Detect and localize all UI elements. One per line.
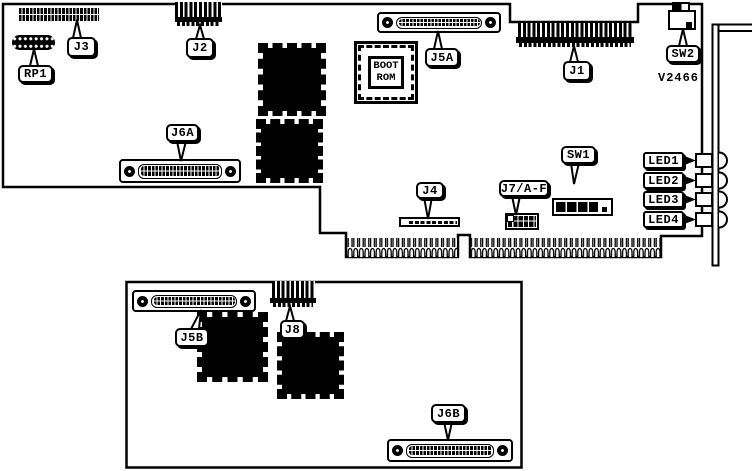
j2-header-pins: [177, 22, 220, 26]
edge-connector-fingers-left: [347, 238, 457, 257]
j4-pins: [409, 221, 457, 224]
j5a-pin-slot: [396, 17, 482, 29]
j4-pin-header: [399, 217, 460, 227]
callout-j6b-text: J6B: [437, 407, 460, 421]
j2-pin-header: [175, 2, 222, 17]
callout-j2-text: J2: [192, 41, 207, 55]
callout-tail-j8: [286, 306, 294, 321]
boot-rom-label: BOOT ROM: [368, 56, 403, 90]
screw-icon: [124, 166, 135, 177]
callout-j5a-text: J5A: [430, 51, 453, 65]
callout-j5a: J5A: [425, 48, 459, 67]
callout-rp1-text: RP1: [24, 67, 47, 81]
j6b-connector: [387, 439, 513, 462]
callout-j7af-text: J7/A-F: [501, 182, 547, 196]
callout-j6a: J6A: [166, 124, 199, 142]
boot-rom-socket: BOOT ROM: [358, 45, 414, 100]
callout-sw1: SW1: [561, 146, 596, 164]
callout-led2: LED2: [643, 172, 684, 189]
callout-sw2-text: SW2: [671, 47, 694, 61]
callout-j5b-text: J5B: [180, 331, 203, 345]
rp1-resistor-pack: [12, 35, 55, 50]
j6a-pin-slot: [138, 164, 222, 179]
sw2-pin-dot: [686, 22, 692, 28]
callout-j8: J8: [280, 320, 305, 339]
sw1-pin-dot: [602, 207, 607, 212]
qfp-chip-d: [277, 332, 344, 399]
callout-sw1-text: SW1: [567, 148, 590, 162]
mounting-bracket: [713, 25, 719, 266]
callout-led1-text: LED1: [648, 154, 679, 168]
edge-connector-fingers-right: [471, 238, 660, 257]
callout-j8-text: J8: [285, 323, 300, 337]
j6a-connector: [119, 159, 241, 183]
callout-led4: LED4: [643, 211, 684, 228]
callout-tail-j4: [424, 197, 432, 219]
callout-led3-text: LED3: [648, 193, 679, 207]
j1-header-pins: [519, 43, 631, 47]
led4-lens: [719, 212, 727, 228]
callout-tail-j6a: [177, 141, 186, 161]
callout-j4: J4: [416, 182, 444, 199]
sw1-poles: [556, 202, 598, 212]
callout-j4-text: J4: [422, 184, 437, 198]
screw-icon: [137, 296, 148, 307]
led2-lens: [719, 173, 727, 189]
j5b-connector: [132, 290, 256, 312]
led4-indicator: [695, 212, 713, 227]
callout-tail-j1: [570, 46, 578, 62]
callout-j2: J2: [186, 38, 214, 58]
callout-led3: LED3: [643, 191, 684, 208]
callout-j5b: J5B: [175, 328, 209, 347]
callout-tail-j6b: [444, 422, 452, 440]
callout-rp1: RP1: [18, 65, 53, 83]
led1-indicator: [695, 153, 713, 168]
j7af-pin1-marker: [508, 216, 513, 221]
callout-led4-text: LED4: [648, 213, 679, 227]
led3-indicator: [695, 192, 713, 207]
j8-header-pins: [273, 303, 313, 307]
boot-rom-line1: BOOT: [373, 61, 398, 73]
boot-rom-line2: ROM: [373, 73, 398, 85]
screw-icon: [382, 17, 393, 28]
callout-j1-text: J1: [569, 64, 584, 78]
part-number-text: V2466: [658, 71, 699, 85]
qfp-chip-a: [258, 43, 326, 116]
callout-j6b: J6B: [431, 404, 466, 423]
j1-pin-header: [518, 23, 632, 37]
j5b-pin-slot: [151, 295, 237, 308]
callout-j3: J3: [67, 37, 96, 57]
screw-icon: [240, 296, 251, 307]
led1-lens: [719, 153, 727, 169]
qfp-chip-b: [256, 119, 323, 183]
mounting-bracket-arm: [713, 25, 752, 32]
led2-indicator: [695, 173, 713, 188]
callout-tail-rp1: [30, 49, 38, 66]
callout-led1: LED1: [643, 152, 684, 169]
led3-lens: [719, 192, 727, 208]
j6b-pin-slot: [406, 444, 494, 458]
callout-sw2: SW2: [666, 45, 700, 63]
pcb-layout-diagram: BOOT ROM: [0, 0, 752, 471]
j8-pin-header: [272, 281, 315, 298]
callout-j6a-text: J6A: [171, 126, 194, 140]
callout-j1: J1: [563, 61, 591, 81]
j7af-pin-header: [505, 213, 539, 230]
screw-icon: [225, 166, 236, 177]
j5a-connector: [377, 12, 501, 33]
j3-connector: [19, 8, 99, 21]
sw1-dip-switch: [552, 198, 613, 216]
callout-tail-j3: [73, 20, 81, 38]
screw-icon: [497, 445, 508, 456]
boot-rom-chip: BOOT ROM: [354, 41, 418, 104]
callout-tail-j2: [196, 25, 204, 39]
callout-tail-j5a: [434, 31, 442, 49]
callout-tail-sw2: [679, 29, 687, 46]
callout-led2-text: LED2: [648, 174, 679, 188]
qfp-chip-c: [197, 312, 268, 382]
callout-j7af: J7/A-F: [499, 180, 549, 197]
screw-icon: [485, 17, 496, 28]
callout-j3-text: J3: [74, 40, 89, 54]
screw-icon: [392, 445, 403, 456]
callout-tail-sw1: [571, 163, 579, 184]
